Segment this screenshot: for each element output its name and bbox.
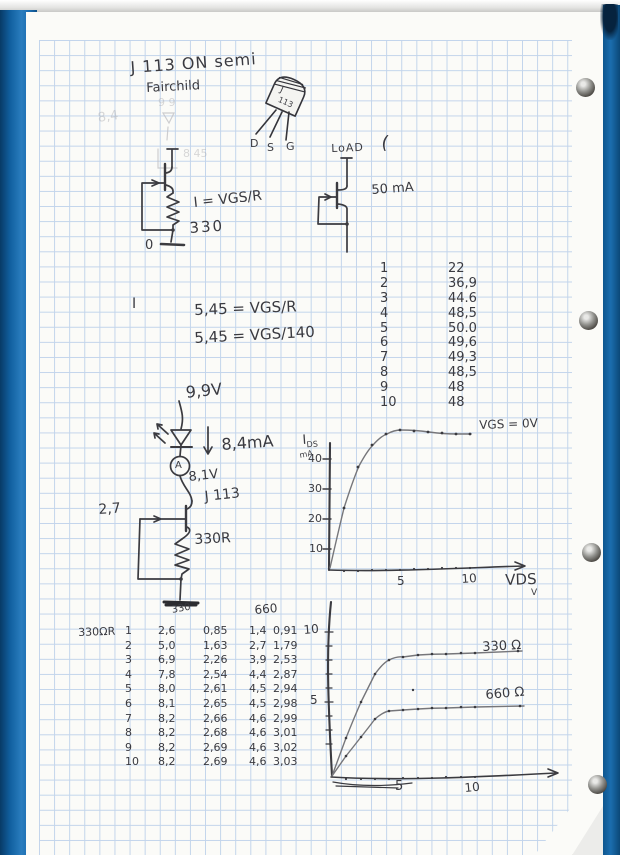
- row-index: 10: [380, 396, 397, 409]
- row-index: 7: [380, 351, 388, 364]
- v-660: 1,4: [249, 625, 267, 636]
- row-value: 44.6: [448, 292, 477, 305]
- v-660: 4,5: [249, 698, 267, 709]
- vgs-660: 1,79: [273, 640, 298, 651]
- row-index: 9: [125, 742, 132, 753]
- vgs-330: 2,61: [203, 683, 228, 694]
- load-current-value: 50 mA: [371, 181, 414, 197]
- lone-current-mark: I: [132, 297, 136, 311]
- load-circuit-drawing: [318, 158, 352, 252]
- faint-note: 8 45: [183, 148, 208, 159]
- v-330: 6,9: [158, 654, 176, 665]
- xtick-10: 10: [461, 572, 477, 585]
- selfbias-resistor-value: 330: [189, 219, 225, 236]
- row-index: 9: [380, 381, 388, 394]
- row-index: 4: [380, 307, 388, 320]
- equation-1: 5,45 = VGS/R: [194, 299, 297, 318]
- row-index: 8: [380, 366, 388, 379]
- ground-zero-label: 0: [145, 239, 153, 252]
- ytick-5-bottom: 5: [310, 694, 318, 706]
- vgs-330: 2,69: [203, 742, 228, 753]
- vgs-330: 2,54: [203, 669, 228, 680]
- ytick-30: 30: [308, 483, 322, 494]
- row-index: 7: [125, 713, 132, 724]
- v-660: 4,6: [249, 727, 267, 738]
- curve-label-330: 330 Ω: [482, 639, 522, 654]
- row-index: 8: [125, 727, 132, 738]
- vgs-660: 3,03: [273, 756, 298, 767]
- supply-voltage-label: 9,9V: [185, 381, 223, 401]
- vgs-660: 2,94: [273, 683, 298, 694]
- vgs-330: 2,66: [203, 713, 228, 724]
- vgs-660: 3,01: [273, 727, 298, 738]
- row-value: 22: [448, 262, 465, 275]
- curve-vgs0-points: [343, 429, 472, 510]
- v-330: 8,2: [158, 727, 176, 738]
- xtick-5-bottom: 5: [395, 780, 403, 793]
- vgs-330: 2,68: [203, 727, 228, 738]
- v-660: 2,7: [249, 640, 267, 651]
- scanned-notebook-page: J 113 ON semi Fairchild 8,4 9 9 8 45 D S…: [0, 0, 620, 855]
- xtick-10-bottom: 10: [464, 781, 480, 794]
- row-index: 6: [380, 336, 388, 349]
- transistor-package-icon: [256, 73, 309, 140]
- graph-top-xlabel: VDS: [505, 572, 537, 588]
- row-value: 49,3: [448, 351, 477, 364]
- row-index: 2: [125, 640, 132, 651]
- faint-pencil-marks: [158, 113, 177, 168]
- table-header-660: 660: [254, 602, 278, 616]
- row-index: 1: [125, 625, 132, 636]
- vgs-330: 2,26: [203, 654, 228, 665]
- v-660: 4,5: [249, 683, 267, 694]
- row-index: 3: [380, 292, 388, 305]
- row-value: 49,6: [448, 336, 477, 349]
- row-index: 3: [125, 654, 132, 665]
- vgs-330: 0,85: [203, 625, 228, 636]
- vgs-660: 3,02: [273, 742, 298, 753]
- led-ammeter-circuit-drawing: [138, 401, 212, 605]
- load-title: LoAD: [331, 142, 364, 154]
- faint-note: 9 9: [158, 97, 176, 108]
- vgs-660: 0,91: [273, 625, 298, 636]
- v-660: 3,9: [249, 654, 267, 665]
- pin-label-drain: D: [250, 138, 258, 149]
- v-660: 4,4: [249, 669, 267, 680]
- vgs-660: 2,98: [273, 698, 298, 709]
- table-row-label: 330ΩR: [78, 626, 115, 638]
- xtick-5: 5: [397, 575, 405, 587]
- curve-330ohm: [332, 651, 522, 776]
- vgs-330: 2,65: [203, 698, 228, 709]
- row-value: 50.0: [448, 322, 477, 335]
- vgs-330: 2,69: [203, 756, 228, 767]
- row-value: 48,5: [448, 307, 477, 320]
- row-value: 48,5: [448, 366, 477, 379]
- ytick-10-bottom: 10: [303, 623, 319, 636]
- v-330: 5,0: [158, 640, 176, 651]
- pin-label-gate: G: [286, 141, 295, 152]
- curve-660ohm: [332, 706, 524, 776]
- selfbias-circuit-drawing: [142, 149, 184, 245]
- row-value: 48: [448, 396, 465, 409]
- v-660: 4,6: [249, 713, 267, 724]
- curve-label-660: 660 Ω: [485, 686, 525, 702]
- vgs-660: 2,99: [273, 713, 298, 724]
- ytick-40: 40: [308, 453, 322, 464]
- vgs-660: 2,53: [273, 654, 298, 665]
- row-index: 6: [125, 698, 132, 709]
- row-index: 4: [125, 669, 132, 680]
- source-resistor-label: 330R: [194, 531, 231, 547]
- curve-vgs0: [330, 430, 471, 568]
- v-330: 8,2: [158, 756, 176, 767]
- row-value: 48: [448, 381, 465, 394]
- ammeter-letter: A: [175, 461, 182, 471]
- vgs-330: 1,63: [203, 640, 228, 651]
- ytick-10: 10: [309, 543, 323, 554]
- row-index: 5: [125, 683, 132, 694]
- v-660: 4,6: [249, 742, 267, 753]
- vgs-660: 2,87: [273, 669, 298, 680]
- ytick-20: 20: [308, 513, 322, 524]
- v-660: 4,6: [249, 756, 267, 767]
- graph-top-xunit: V: [531, 589, 537, 598]
- v-330: 2,6: [158, 625, 176, 636]
- v-330: 8,0: [158, 683, 176, 694]
- v-330: 8,2: [158, 713, 176, 724]
- row-index: 2: [380, 277, 388, 290]
- pin-label-source: S: [267, 142, 274, 153]
- mid-voltage-label: 8,1V: [188, 468, 219, 484]
- curve-label-vgs0: VGS = 0V: [479, 417, 538, 431]
- faint-note: 8,4: [97, 109, 119, 125]
- graph-top-drawing: [323, 429, 525, 573]
- page-subtitle: Fairchild: [146, 79, 200, 95]
- transistor-label: J 113: [204, 486, 241, 504]
- ylabel-sub: DS: [306, 440, 318, 450]
- row-value: 36,9: [448, 277, 477, 290]
- graph-top-ylabel: IDS: [302, 433, 318, 450]
- row-index: 1: [380, 262, 388, 275]
- row-index: 5: [380, 322, 388, 335]
- gate-voltage-label: 2,7: [98, 501, 121, 517]
- current-label: 8,4mA: [221, 433, 274, 453]
- v-330: 8,1: [158, 698, 176, 709]
- v-330: 8,2: [158, 742, 176, 753]
- v-330: 7,8: [158, 669, 176, 680]
- row-index: 10: [125, 756, 139, 767]
